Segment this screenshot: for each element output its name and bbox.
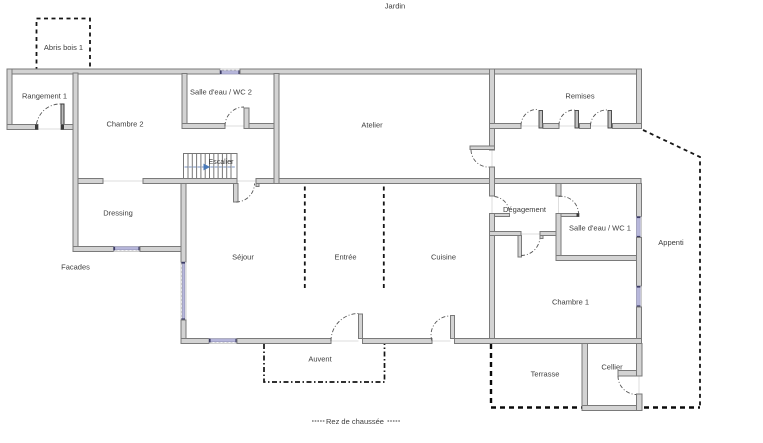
svg-text:Entrée: Entrée — [334, 253, 356, 262]
svg-text:Atelier: Atelier — [361, 121, 383, 130]
svg-text:Rez de chaussée: Rez de chaussée — [326, 417, 384, 426]
svg-text:Appenti: Appenti — [658, 238, 684, 247]
svg-text:Dressing: Dressing — [103, 209, 133, 218]
svg-text:Facades: Facades — [61, 263, 90, 272]
svg-text:Terrasse: Terrasse — [531, 370, 560, 379]
svg-text:Cuisine: Cuisine — [431, 253, 456, 262]
svg-text:Rangement 1: Rangement 1 — [22, 92, 67, 101]
svg-text:Abris bois 1: Abris bois 1 — [44, 43, 83, 52]
svg-text:Escalier: Escalier — [209, 159, 235, 166]
svg-text:Auvent: Auvent — [308, 355, 332, 364]
svg-text:Remises: Remises — [565, 92, 594, 101]
svg-text:Jardin: Jardin — [385, 2, 405, 11]
svg-text:Chambre 2: Chambre 2 — [106, 120, 143, 129]
svg-text:Salle d'eau / WC 2: Salle d'eau / WC 2 — [190, 88, 252, 97]
svg-text:Dégagement: Dégagement — [503, 205, 547, 214]
svg-text:Salle d'eau / WC 1: Salle d'eau / WC 1 — [569, 224, 631, 233]
svg-text:Séjour: Séjour — [232, 253, 254, 262]
svg-text:Chambre 1: Chambre 1 — [552, 298, 589, 307]
svg-text:Cellier: Cellier — [601, 363, 623, 372]
